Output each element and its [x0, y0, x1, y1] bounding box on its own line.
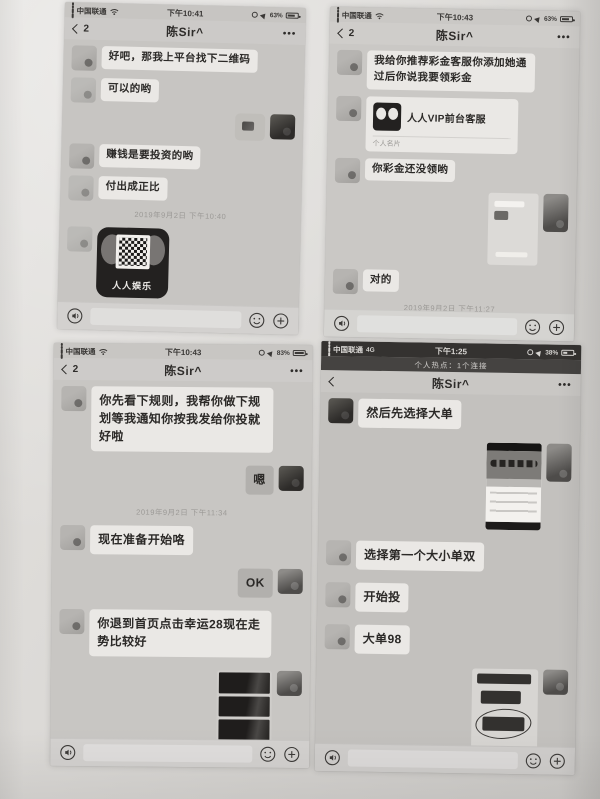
clock-time: 下午1:25	[375, 344, 528, 357]
message-bubble: 我给你推荐彩金客服你添加她通过后你说我要领彩金	[367, 50, 536, 92]
rotation-lock-icon	[527, 349, 533, 355]
chat-input-bar	[57, 301, 299, 335]
rotation-lock-icon	[526, 15, 532, 21]
shared-annotated-screenshot-thumbnail[interactable]	[471, 668, 538, 747]
message-bubble: 嗯	[245, 466, 274, 495]
message-list: 我给你推荐彩金客服你添加她通过后你说我要领彩金 人人VIP前台客服 个人名片 你…	[324, 44, 579, 314]
message-row: 付出成正比	[68, 175, 294, 205]
contact-card-title: 人人VIP前台客服	[407, 109, 486, 126]
wechat-chat-screenshot-3: 中国联通 下午10:43 83% 陈Sir^ 2 ••• 你先看下规则，我帮你做…	[50, 343, 313, 768]
user-avatar[interactable]	[543, 193, 569, 231]
contact-card-message[interactable]: 人人VIP前台客服 个人名片	[365, 96, 518, 154]
carrier-label: 中国联通	[76, 5, 106, 17]
wechat-chat-screenshot-2: 中国联通 下午10:43 63% 陈Sir^ 2 ••• 我给你推荐彩金客服你添…	[324, 7, 580, 342]
carrier-label: 中国联通	[342, 9, 372, 21]
message-input[interactable]	[357, 315, 517, 335]
voice-input-icon[interactable]	[324, 749, 341, 766]
message-row: 赚钱是要投资的哟	[69, 143, 295, 173]
chat-nav-bar: 陈Sir^ •••	[321, 370, 581, 396]
emoji-icon[interactable]	[524, 318, 541, 335]
message-bubble: 赚钱是要投资的哟	[99, 144, 201, 169]
message-row	[326, 440, 571, 531]
network-type-label: 4G	[366, 346, 375, 353]
battery-icon	[560, 16, 573, 22]
message-row: 然后先选择大单	[328, 398, 572, 431]
message-row	[70, 109, 296, 141]
signal-strength-icon	[61, 343, 63, 359]
message-bubble: 好吧，那我上平台找下二维码	[101, 46, 257, 73]
user-avatar[interactable]	[278, 569, 303, 594]
wechat-chat-screenshot-4: 中国联通 4G 下午1:25 38% 个人热点：1个连接 陈Sir^ ••• 然…	[315, 341, 582, 775]
voice-input-icon[interactable]	[66, 307, 83, 324]
user-avatar[interactable]	[546, 444, 572, 482]
plus-icon[interactable]	[549, 753, 566, 770]
chat-title: 陈Sir^	[321, 372, 581, 393]
user-avatar[interactable]	[543, 670, 568, 695]
message-bubble: 开始投	[355, 583, 409, 613]
message-list: 然后先选择大单 选择第一个大小单双 开始投 大单98	[315, 392, 580, 747]
wifi-icon	[375, 12, 384, 19]
message-row: 开始投	[325, 582, 569, 615]
chat-input-bar	[324, 309, 574, 342]
message-row: 你退到首页点击幸运28现在走势比较好	[59, 609, 302, 658]
contact-avatar[interactable]	[336, 95, 361, 120]
message-bubble: 你先看下规则，我帮你做下规划等我通知你按我发给你投就好啦	[91, 386, 274, 453]
contact-avatar[interactable]	[60, 525, 85, 550]
chat-input-bar	[50, 738, 309, 768]
carrier-label: 中国联通	[333, 344, 363, 355]
message-input[interactable]	[348, 749, 518, 769]
message-row: 可以的哟	[71, 77, 297, 107]
message-row: 人人娱乐	[66, 226, 293, 301]
message-bubble: 可以的哟	[101, 78, 159, 102]
chat-input-bar	[315, 743, 575, 775]
timestamp-label: 2019年9月2日 下午10:40	[68, 207, 293, 223]
contact-avatar[interactable]	[325, 624, 350, 649]
message-bubble: 大单98	[354, 625, 409, 655]
contact-avatar[interactable]	[325, 582, 350, 607]
contact-avatar[interactable]	[337, 50, 362, 75]
contact-avatar[interactable]	[333, 268, 358, 293]
message-bubble: 你退到首页点击幸运28现在走势比较好	[89, 609, 271, 658]
clock-time: 下午10:43	[384, 10, 526, 24]
photo-of-printed-wechat-screenshots: { "icons": { "more": "•••" }, "phones": …	[0, 0, 600, 799]
location-arrow-icon	[260, 11, 268, 19]
message-row: 大单98	[324, 624, 568, 657]
contact-avatar[interactable]	[328, 398, 353, 423]
battery-icon	[286, 13, 299, 19]
battery-icon	[293, 350, 306, 356]
message-row: 人人VIP前台客服 个人名片	[335, 95, 570, 154]
message-input[interactable]	[90, 308, 241, 329]
plus-icon[interactable]	[272, 312, 289, 329]
message-row: 现在准备开始咯	[60, 525, 303, 556]
sticker-message[interactable]	[235, 113, 266, 141]
qr-code-icon	[116, 234, 151, 269]
wifi-icon	[99, 348, 108, 355]
battery-percent: 38%	[545, 349, 558, 356]
clock-time: 下午10:43	[108, 346, 259, 358]
contact-avatar[interactable]	[68, 175, 94, 201]
message-bubble: 然后先选择大单	[358, 399, 461, 430]
carrier-label: 中国联通	[66, 345, 96, 356]
message-list: 你先看下规则，我帮你做下规划等我通知你按我发给你投就好啦 嗯 2019年9月2日…	[50, 380, 312, 740]
contact-avatar[interactable]	[69, 143, 95, 169]
battery-percent: 63%	[544, 15, 557, 22]
battery-percent: 63%	[270, 12, 283, 19]
circle-annotation	[475, 707, 533, 740]
emoji-icon[interactable]	[248, 312, 265, 329]
qr-code-image-message[interactable]: 人人娱乐	[96, 227, 170, 299]
wifi-icon	[110, 8, 119, 15]
message-bubble: 对的	[363, 269, 399, 292]
message-bubble: OK	[238, 568, 273, 597]
message-row: 选择第一个大小单双	[326, 540, 570, 573]
chat-title: 陈Sir^	[54, 360, 313, 379]
user-avatar[interactable]	[277, 671, 302, 696]
user-avatar[interactable]	[279, 466, 304, 491]
battery-percent: 83%	[277, 349, 290, 356]
shared-screenshot-thumbnail[interactable]	[216, 670, 272, 740]
contact-avatar[interactable]	[71, 77, 97, 103]
message-row: 对的	[333, 268, 567, 297]
message-row	[323, 666, 568, 747]
emoji-icon[interactable]	[259, 746, 276, 763]
user-avatar[interactable]	[270, 114, 296, 140]
plus-icon[interactable]	[283, 746, 300, 763]
message-row	[58, 669, 302, 740]
plus-icon[interactable]	[548, 319, 565, 336]
message-bubble: 你彩金还没领哟	[365, 158, 456, 182]
shared-app-screenshot-thumbnail[interactable]	[485, 443, 541, 531]
message-list: 好吧，那我上平台找下二维码 可以的哟 赚钱是要投资的哟 付出成正比 2019年9…	[58, 39, 305, 307]
signal-strength-icon	[328, 341, 330, 357]
message-row: 我给你推荐彩金客服你添加她通过后你说我要领彩金	[337, 50, 572, 93]
message-row	[333, 189, 568, 265]
message-row: 你先看下规则，我帮你做下规划等我通知你按我发给你投就好啦	[61, 386, 305, 453]
back-button[interactable]	[330, 378, 337, 385]
chat-title: 陈Sir^	[64, 20, 305, 43]
message-row: 嗯	[61, 464, 304, 495]
location-arrow-icon	[267, 349, 275, 357]
voice-input-icon[interactable]	[59, 744, 76, 761]
message-bubble: 付出成正比	[98, 176, 167, 200]
contact-avatar[interactable]	[326, 540, 351, 565]
contact-avatar[interactable]	[61, 386, 86, 411]
location-arrow-icon	[535, 349, 543, 357]
qr-card-label: 人人娱乐	[96, 278, 168, 293]
signal-strength-icon	[72, 2, 74, 18]
rotation-lock-icon	[259, 350, 265, 356]
contact-avatar[interactable]	[67, 226, 93, 252]
message-bubble: 选择第一个大小单双	[356, 541, 484, 572]
shared-screenshot-thumbnail[interactable]	[487, 192, 538, 265]
contact-avatar[interactable]	[71, 45, 97, 71]
chat-nav-bar: 陈Sir^ 2 •••	[54, 358, 313, 382]
message-bubble: 现在准备开始咯	[90, 525, 193, 555]
contact-card-type-label: 个人名片	[372, 135, 510, 151]
voice-input-icon[interactable]	[333, 315, 350, 332]
contact-avatar[interactable]	[59, 609, 84, 634]
contact-avatar[interactable]	[335, 157, 360, 182]
emoji-icon[interactable]	[525, 752, 542, 769]
message-row: OK	[60, 567, 303, 598]
chat-title: 陈Sir^	[330, 24, 580, 46]
message-input[interactable]	[83, 744, 252, 762]
rotation-lock-icon	[252, 12, 258, 18]
wechat-chat-screenshot-1: 中国联通 下午10:41 63% 陈Sir^ 2 ••• 好吧，那我上平台找下二…	[57, 2, 306, 335]
signal-strength-icon	[337, 7, 339, 23]
renren-logo-avatar	[373, 102, 402, 131]
timestamp-label: 2019年9月2日 下午11:34	[60, 506, 303, 519]
battery-icon	[561, 350, 574, 356]
message-row: 你彩金还没领哟	[335, 157, 569, 186]
message-row: 好吧，那我上平台找下二维码	[71, 45, 297, 75]
location-arrow-icon	[534, 15, 542, 23]
